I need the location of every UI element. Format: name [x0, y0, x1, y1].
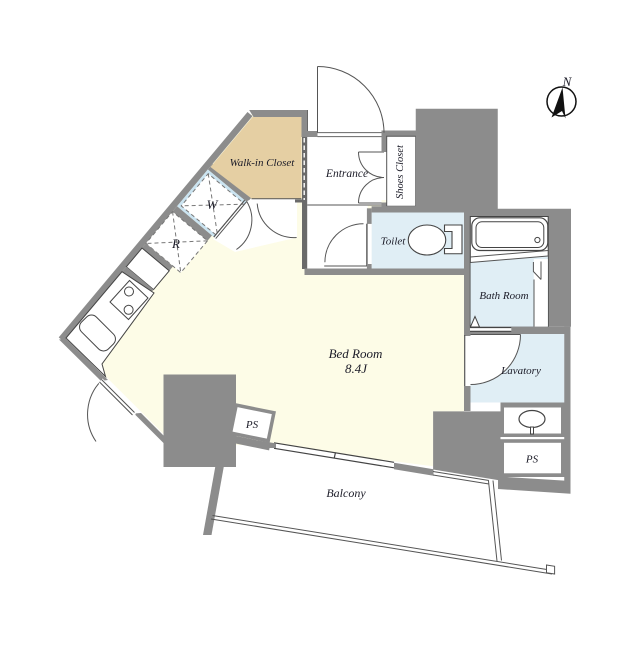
svg-text:Toilet: Toilet [381, 236, 407, 248]
svg-text:Balcony: Balcony [326, 486, 366, 500]
svg-text:PS: PS [245, 419, 259, 431]
svg-text:N: N [562, 74, 573, 89]
svg-text:W: W [207, 197, 219, 212]
svg-text:Bed Room: Bed Room [329, 346, 383, 361]
svg-text:Lavatory: Lavatory [500, 365, 541, 377]
svg-text:8.4J: 8.4J [345, 361, 368, 376]
svg-text:PS: PS [525, 454, 539, 466]
svg-text:Shoes Closet: Shoes Closet [395, 144, 406, 199]
svg-text:Entrance: Entrance [325, 168, 368, 180]
svg-text:R: R [171, 236, 180, 251]
svg-text:Walk-in Closet: Walk-in Closet [230, 157, 296, 169]
svg-text:Bath Room: Bath Room [479, 290, 528, 302]
